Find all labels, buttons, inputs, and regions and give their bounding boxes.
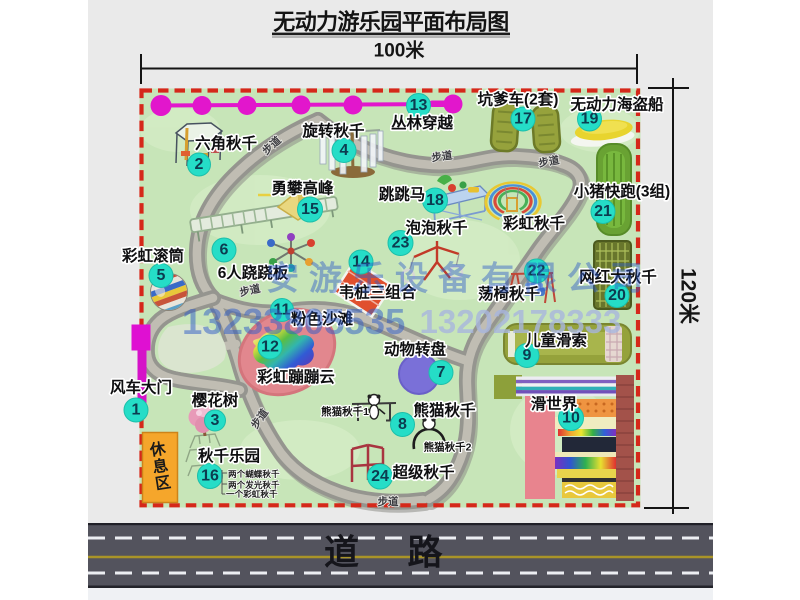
svg-text:道: 道 <box>324 534 359 573</box>
svg-text:滑世界: 滑世界 <box>531 395 578 413</box>
svg-text:13233805535: 13233805535 <box>182 301 405 342</box>
svg-text:13: 13 <box>410 97 428 114</box>
svg-text:4: 4 <box>340 142 349 159</box>
svg-text:3: 3 <box>211 412 220 429</box>
svg-text:彩虹滚筒: 彩虹滚筒 <box>121 246 184 265</box>
svg-text:两个蝴蝶秋千: 两个蝴蝶秋千 <box>228 468 280 479</box>
svg-text:六角秋千: 六角秋千 <box>195 134 258 153</box>
svg-text:彩虹蹦蹦云: 彩虹蹦蹦云 <box>256 367 335 386</box>
svg-text:风车大门: 风车大门 <box>110 378 172 397</box>
svg-text:6: 6 <box>220 242 229 259</box>
svg-text:24: 24 <box>371 468 389 485</box>
svg-text:8: 8 <box>398 416 407 433</box>
svg-text:樱花树: 樱花树 <box>192 391 239 410</box>
svg-text:旋转秋千: 旋转秋千 <box>301 121 365 140</box>
svg-text:小猪快跑(3组): 小猪快跑(3组) <box>574 182 670 201</box>
svg-text:7: 7 <box>437 364 446 381</box>
svg-text:21: 21 <box>594 203 612 220</box>
svg-text:动物转盘: 动物转盘 <box>384 340 447 359</box>
svg-text:步道: 步道 <box>378 495 399 508</box>
svg-text:17: 17 <box>514 111 532 128</box>
svg-text:丛林穿越: 丛林穿越 <box>391 113 454 132</box>
svg-text:9: 9 <box>523 347 532 364</box>
svg-text:熊猫秋千2: 熊猫秋千2 <box>424 441 472 454</box>
svg-text:泡泡秋千: 泡泡秋千 <box>405 218 468 237</box>
svg-text:熊猫秋千1: 熊猫秋千1 <box>321 405 369 418</box>
svg-text:一个彩虹秋千: 一个彩虹秋千 <box>226 488 278 499</box>
svg-text:无动力海盗船: 无动力海盗船 <box>569 95 664 114</box>
svg-text:秋千乐园: 秋千乐园 <box>198 446 260 465</box>
svg-text:5: 5 <box>157 267 166 284</box>
svg-text:超级秋千: 超级秋千 <box>391 463 455 482</box>
svg-text:120米: 120米 <box>677 268 700 325</box>
svg-text:100米: 100米 <box>374 39 426 62</box>
svg-text:18: 18 <box>426 192 444 209</box>
svg-text:2: 2 <box>195 156 204 173</box>
svg-text:跳跳马: 跳跳马 <box>379 185 426 204</box>
svg-text:路: 路 <box>407 534 443 573</box>
svg-text:勇攀高峰: 勇攀高峰 <box>271 179 334 198</box>
svg-text:16: 16 <box>201 468 219 485</box>
svg-text:15: 15 <box>301 201 319 218</box>
svg-text:彩虹秋千: 彩虹秋千 <box>502 214 566 233</box>
svg-text:熊猫秋千: 熊猫秋千 <box>413 401 476 420</box>
svg-text:无动力游乐园平面布局图: 无动力游乐园平面布局图 <box>273 10 508 35</box>
svg-text:坑爹车(2套): 坑爹车(2套) <box>478 90 559 109</box>
svg-text:13202178333: 13202178333 <box>420 303 622 340</box>
svg-text:安游乐设备有限公司: 安游乐设备有限公司 <box>266 260 653 297</box>
svg-text:1: 1 <box>132 402 141 419</box>
svg-text:23: 23 <box>392 235 410 252</box>
